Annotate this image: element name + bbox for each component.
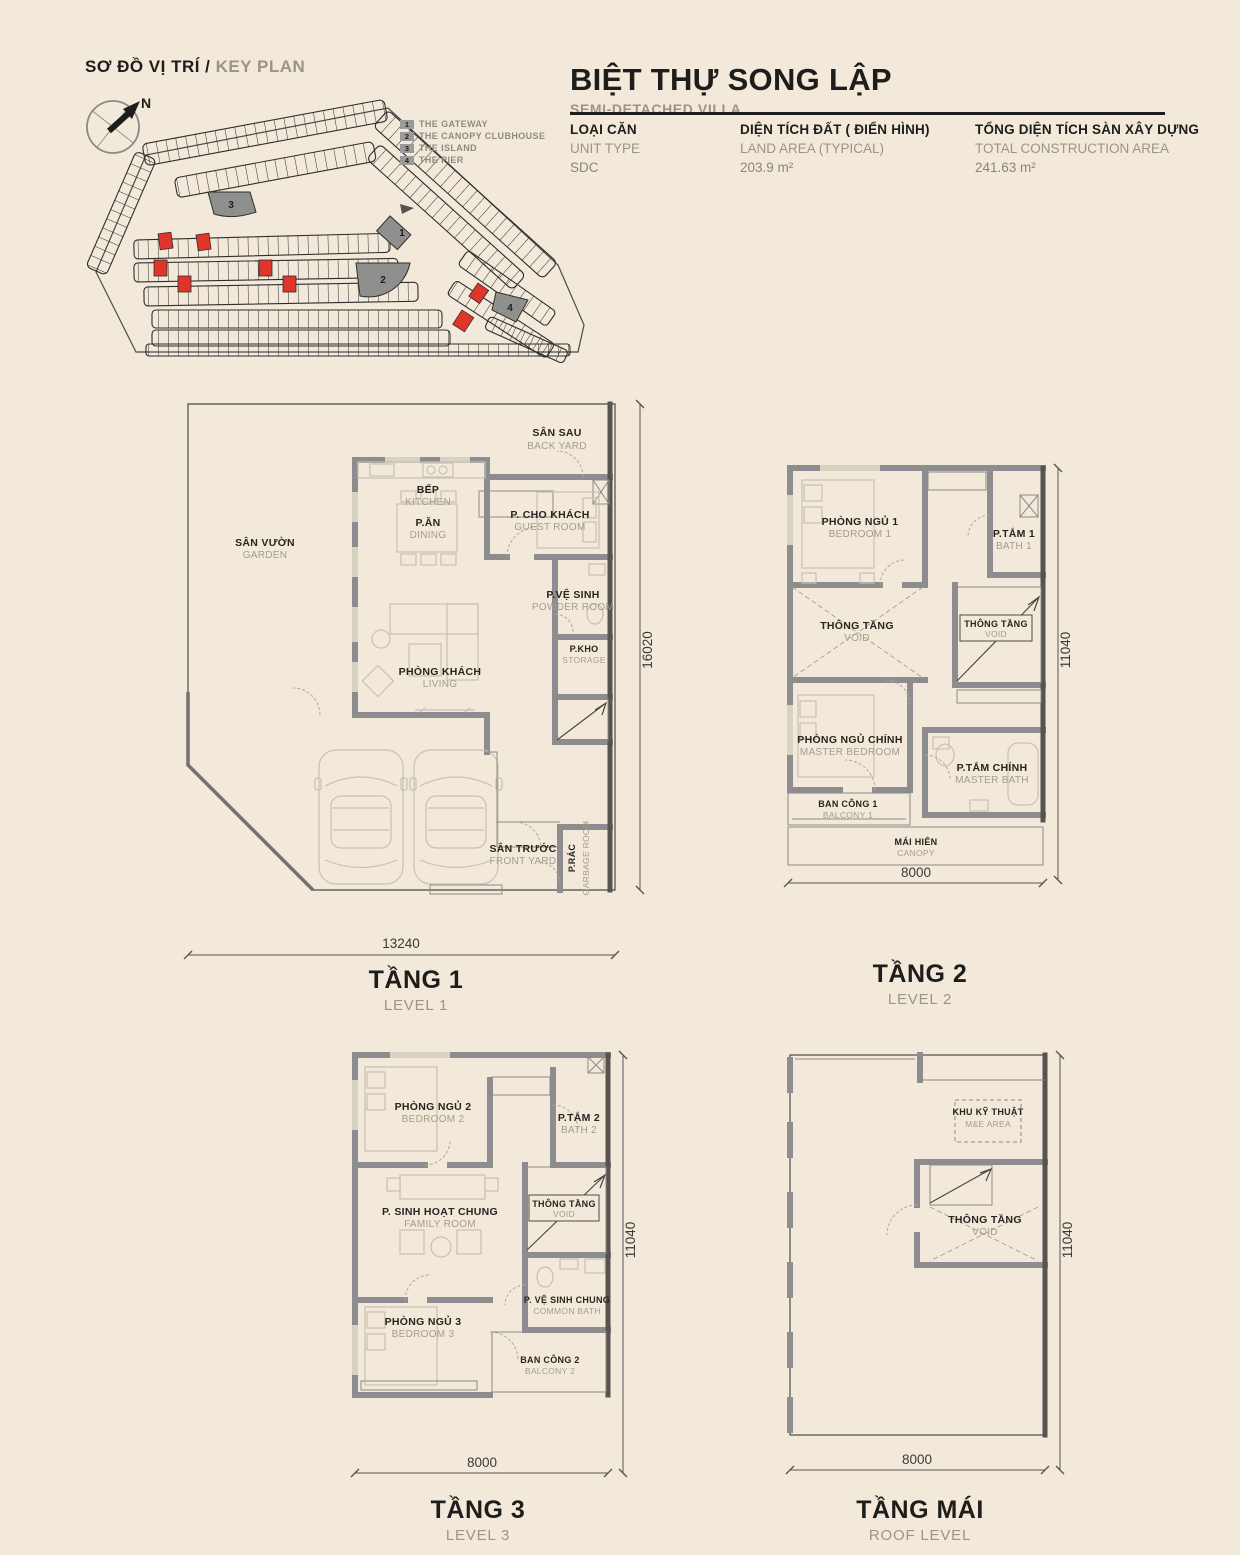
level1-plan: SÂN SAU BACK YARD BẾP KITCHEN P.ĂN DININ… <box>185 392 665 1022</box>
svg-text:P.TẮM 1: P.TẮM 1 <box>993 527 1035 540</box>
site-legend: 1 THE GATEWAY 2 THE CANOPY CLUBHOUSE 3 T… <box>400 119 545 167</box>
level3-name: TẦNG 3 LEVEL 3 <box>368 1496 588 1544</box>
car <box>315 750 407 884</box>
legend-num-chip: 3 <box>400 144 414 153</box>
legend-num-chip: 1 <box>400 120 414 129</box>
legend-item: 1 THE GATEWAY <box>400 119 545 129</box>
svg-text:11040: 11040 <box>1060 1222 1075 1259</box>
stairs <box>930 1165 992 1205</box>
svg-text:1: 1 <box>399 228 405 239</box>
svg-text:MASTER BATH: MASTER BATH <box>955 775 1029 786</box>
svg-text:BALCONY 1: BALCONY 1 <box>823 810 873 820</box>
key-plan-title: SƠ ĐỒ VỊ TRÍ / KEY PLAN <box>85 57 305 77</box>
svg-text:POWDER ROOM: POWDER ROOM <box>532 602 614 613</box>
svg-text:P.RÁC: P.RÁC <box>567 844 577 873</box>
legend-num-chip: 4 <box>400 156 414 165</box>
spec-value: 203.9 m² <box>740 160 965 175</box>
svg-text:16020: 16020 <box>640 631 655 669</box>
level3-plan: PHÒNG NGỦ 2 BEDROOM 2 P.TẮM 2 BATH 2 P. … <box>345 1045 645 1495</box>
spec-construction-area: TỔNG DIỆN TÍCH SÀN XÂY DỰNG TOTAL CONSTR… <box>975 122 1205 175</box>
svg-text:THÔNG TẦNG: THÔNG TẦNG <box>964 618 1028 629</box>
spec-unit-type: LOẠI CĂN UNIT TYPE SDC <box>570 122 705 175</box>
room-labels: PHÒNG NGỦ 2 BEDROOM 2 P.TẮM 2 BATH 2 P. … <box>382 1100 610 1376</box>
svg-text:BEDROOM 3: BEDROOM 3 <box>392 1329 455 1340</box>
legend-item: 2 THE CANOPY CLUBHOUSE <box>400 131 545 141</box>
page-title: BIỆT THỰ SONG LẬP <box>570 62 892 98</box>
svg-text:P.ĂN: P.ĂN <box>416 516 441 529</box>
fence <box>188 692 313 890</box>
legend-item: 4 THE PIER <box>400 155 545 165</box>
svg-text:P. VỆ SINH CHUNG: P. VỆ SINH CHUNG <box>524 1294 610 1305</box>
svg-text:PHÒNG KHÁCH: PHÒNG KHÁCH <box>399 665 482 678</box>
svg-text:PHÒNG NGỦ 3: PHÒNG NGỦ 3 <box>385 1315 462 1328</box>
svg-text:COMMON BATH: COMMON BATH <box>533 1306 600 1316</box>
svg-text:GUEST ROOM: GUEST ROOM <box>514 522 585 533</box>
svg-text:VOID: VOID <box>844 633 870 644</box>
svg-text:THÔNG TẦNG: THÔNG TẦNG <box>948 1213 1022 1226</box>
door-arcs <box>887 1205 917 1235</box>
svg-text:BẾP: BẾP <box>417 483 440 496</box>
svg-text:P. CHO KHÁCH: P. CHO KHÁCH <box>510 508 589 521</box>
svg-text:FAMILY ROOM: FAMILY ROOM <box>404 1219 476 1230</box>
svg-text:GARDEN: GARDEN <box>243 550 288 561</box>
svg-text:P.KHO: P.KHO <box>570 644 599 654</box>
svg-text:BAN CÔNG 2: BAN CÔNG 2 <box>520 1354 580 1365</box>
svg-text:MASTER BEDROOM: MASTER BEDROOM <box>800 747 900 758</box>
walls <box>355 1055 608 1395</box>
svg-text:CANOPY: CANOPY <box>897 848 935 858</box>
svg-text:FRONT YARD: FRONT YARD <box>490 856 557 867</box>
svg-text:VOID: VOID <box>972 1227 998 1238</box>
svg-text:GARBAGE ROOM: GARBAGE ROOM <box>581 821 591 895</box>
svg-text:P. SINH HOẠT CHUNG: P. SINH HOẠT CHUNG <box>382 1206 498 1218</box>
svg-text:BACK YARD: BACK YARD <box>527 441 587 452</box>
svg-text:THÔNG TẦNG: THÔNG TẦNG <box>820 619 894 632</box>
closet <box>492 1077 550 1095</box>
svg-text:THÔNG TẦNG: THÔNG TẦNG <box>532 1198 596 1209</box>
svg-text:STORAGE: STORAGE <box>562 655 606 665</box>
svg-text:BALCONY 2: BALCONY 2 <box>525 1366 575 1376</box>
svg-text:PHÒNG NGỦ CHÍNH: PHÒNG NGỦ CHÍNH <box>797 733 902 746</box>
svg-text:BEDROOM 2: BEDROOM 2 <box>402 1114 465 1125</box>
svg-text:DINING: DINING <box>410 530 447 541</box>
level1-name: TẦNG 1 LEVEL 1 <box>306 966 526 1014</box>
svg-text:MÁI HIÊN: MÁI HIÊN <box>895 836 938 847</box>
svg-text:11040: 11040 <box>623 1222 638 1259</box>
svg-text:3: 3 <box>228 200 234 211</box>
spec-land-area: DIỆN TÍCH ĐẤT ( ĐIỂN HÌNH) LAND AREA (TY… <box>740 122 965 175</box>
svg-text:11040: 11040 <box>1058 632 1073 669</box>
level2-plan: PHÒNG NGỦ 1 BEDROOM 1 P.TẮM 1 BATH 1 THÔ… <box>780 455 1080 905</box>
car <box>410 750 502 884</box>
spec-value: 241.63 m² <box>975 160 1205 175</box>
svg-text:SÂN VƯỜN: SÂN VƯỜN <box>235 536 295 549</box>
svg-text:P.TẮM CHÍNH: P.TẮM CHÍNH <box>957 761 1028 774</box>
svg-text:PHÒNG NGỦ 2: PHÒNG NGỦ 2 <box>395 1100 472 1113</box>
furniture <box>358 462 605 712</box>
svg-text:LIVING: LIVING <box>423 679 458 690</box>
brochure-page: SƠ ĐỒ VỊ TRÍ / KEY PLAN N <box>0 0 1240 1555</box>
svg-text:P.TẮM 2: P.TẮM 2 <box>558 1111 600 1124</box>
legend-num-chip: 2 <box>400 132 414 141</box>
key-plan-title-vi: SƠ ĐỒ VỊ TRÍ / <box>85 57 210 76</box>
title-divider <box>570 112 1165 115</box>
legend-item: 3 THE ISLAND <box>400 143 545 153</box>
svg-text:13240: 13240 <box>382 936 420 951</box>
svg-text:SÂN TRƯỚC: SÂN TRƯỚC <box>489 842 556 855</box>
svg-text:BATH 2: BATH 2 <box>561 1125 597 1136</box>
svg-text:8000: 8000 <box>467 1455 497 1470</box>
svg-text:VOID: VOID <box>985 629 1007 639</box>
closet <box>928 472 986 490</box>
key-plan-title-en: KEY PLAN <box>216 57 306 76</box>
svg-text:M&E AREA: M&E AREA <box>965 1119 1011 1129</box>
svg-text:2: 2 <box>380 275 386 286</box>
svg-text:SÂN SAU: SÂN SAU <box>532 426 581 439</box>
svg-text:P.VỆ SINH: P.VỆ SINH <box>546 588 599 601</box>
level2-name: TẦNG 2 LEVEL 2 <box>810 960 1030 1008</box>
roof-plan: KHU KỸ THUẬT M&E AREA THÔNG TẦNG VOID 11… <box>780 1045 1080 1495</box>
svg-text:BAN CÔNG 1: BAN CÔNG 1 <box>818 798 878 809</box>
svg-text:BATH 1: BATH 1 <box>996 541 1032 552</box>
spec-value: SDC <box>570 160 705 175</box>
windows <box>355 460 470 692</box>
balcony <box>788 793 910 825</box>
roof-name: TẦNG MÁI ROOF LEVEL <box>810 1496 1030 1544</box>
svg-text:BEDROOM 1: BEDROOM 1 <box>829 529 892 540</box>
svg-text:PHÒNG NGỦ 1: PHÒNG NGỦ 1 <box>822 515 899 528</box>
svg-text:KITCHEN: KITCHEN <box>405 497 451 508</box>
svg-text:4: 4 <box>507 303 513 314</box>
gateway-flag-icon <box>400 204 414 214</box>
svg-text:KHU KỸ THUẬT: KHU KỸ THUẬT <box>952 1106 1023 1117</box>
svg-text:8000: 8000 <box>901 865 931 880</box>
svg-text:8000: 8000 <box>902 1452 932 1467</box>
svg-text:VOID: VOID <box>553 1209 575 1219</box>
